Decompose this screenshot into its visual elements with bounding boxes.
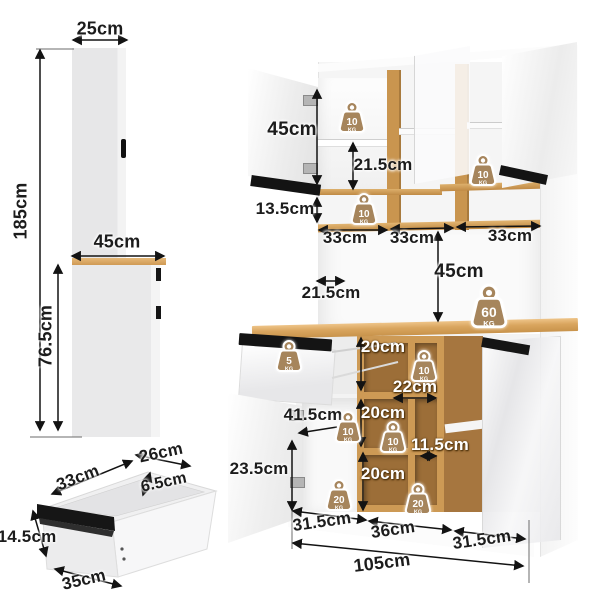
total-width-label: 105cm: [352, 549, 411, 577]
door-opening-height-label: 23.5cm: [230, 459, 289, 479]
svg-text:KG: KG: [420, 377, 428, 383]
weight-capacity-badge: 60KG: [468, 283, 510, 330]
furniture-dimension-diagram: 10KG 10KG 10KG 60KG 5KG 10KG 10KG 10KG 2: [0, 0, 600, 600]
weight-capacity-badge: 20KG: [324, 478, 354, 512]
weight-capacity-badge: 10KG: [378, 420, 408, 454]
svg-text:KG: KG: [479, 181, 487, 187]
oak-shelf-top: [318, 189, 442, 195]
hutch-door-height-label: 45cm: [267, 119, 316, 141]
svg-text:KG: KG: [483, 319, 494, 328]
side-bottom-depth-label: 45cm: [94, 232, 141, 253]
counter-clearance-label: 45cm: [434, 261, 483, 283]
shelf-width-2-label: 33cm: [390, 228, 434, 248]
drawer-length-label: 33cm: [54, 461, 103, 496]
svg-text:10: 10: [346, 117, 358, 128]
side-view-handle-icon: [121, 139, 126, 158]
drawer-width-label: 35cm: [60, 565, 108, 594]
svg-text:KG: KG: [414, 510, 422, 516]
svg-text:KG: KG: [335, 506, 343, 512]
glass-door: [482, 336, 561, 550]
counter-depth-label: 21.5cm: [302, 283, 361, 303]
cubby-width-mid-label: 11.5cm: [411, 435, 469, 455]
drawer-depth-label: 26cm: [137, 439, 184, 468]
cubby-height-1-label: 20cm: [361, 337, 405, 357]
weight-capacity-badge: 10KG: [468, 153, 498, 187]
weight-capacity-badge: 10KG: [409, 349, 439, 383]
side-view-drawer-handle-icon: [156, 268, 161, 281]
svg-text:10: 10: [387, 437, 399, 448]
hinge-icon: [303, 163, 318, 174]
svg-text:10: 10: [342, 427, 354, 438]
svg-text:KG: KG: [360, 220, 368, 226]
side-view-top-panel: [72, 48, 126, 260]
side-view-bottom-panel: [72, 265, 160, 437]
drawer-front-height-label: 14.5cm: [0, 527, 56, 547]
shelf-width-1-label: 33cm: [323, 228, 367, 248]
open-shelf-height-label: 13.5cm: [256, 199, 315, 219]
svg-text:5: 5: [286, 356, 292, 367]
cubby-shelf: [467, 122, 507, 129]
shelf-width-3-label: 33cm: [488, 226, 532, 246]
svg-text:KG: KG: [344, 438, 352, 444]
side-top-width-label: 25cm: [77, 19, 124, 40]
svg-text:10: 10: [358, 209, 370, 220]
side-view-countertop: [72, 258, 166, 265]
svg-text:KG: KG: [285, 367, 293, 373]
svg-text:KG: KG: [348, 128, 356, 134]
svg-text:20: 20: [412, 499, 424, 510]
weight-capacity-badge: 5KG: [274, 339, 304, 373]
hutch-right-door: [502, 42, 577, 188]
oak-divider: [387, 70, 401, 230]
svg-text:10: 10: [477, 170, 489, 181]
svg-text:60: 60: [481, 304, 497, 320]
hinge-icon: [290, 477, 305, 488]
weight-capacity-badge: 10KG: [337, 100, 367, 134]
hinge-icon: [303, 95, 318, 106]
side-bottom-height-label: 76.5cm: [36, 305, 57, 367]
drawer-lip-label: 6.5cm: [139, 469, 188, 496]
hutch-shelf-gap-label: 21.5cm: [354, 155, 413, 175]
hutch-middle-door: [414, 46, 470, 184]
cubby-height-3-label: 20cm: [361, 464, 405, 484]
svg-text:KG: KG: [389, 448, 397, 454]
side-total-height-label: 185cm: [11, 182, 32, 239]
svg-text:20: 20: [333, 495, 345, 506]
hutch-shelf: [318, 139, 388, 147]
weight-capacity-badge: 10KG: [349, 192, 379, 226]
weight-capacity-badge: 10KG: [333, 410, 363, 444]
side-view-door-handle-icon: [156, 306, 161, 319]
weight-capacity-badge: 20KG: [403, 482, 433, 516]
svg-text:10: 10: [418, 366, 430, 377]
